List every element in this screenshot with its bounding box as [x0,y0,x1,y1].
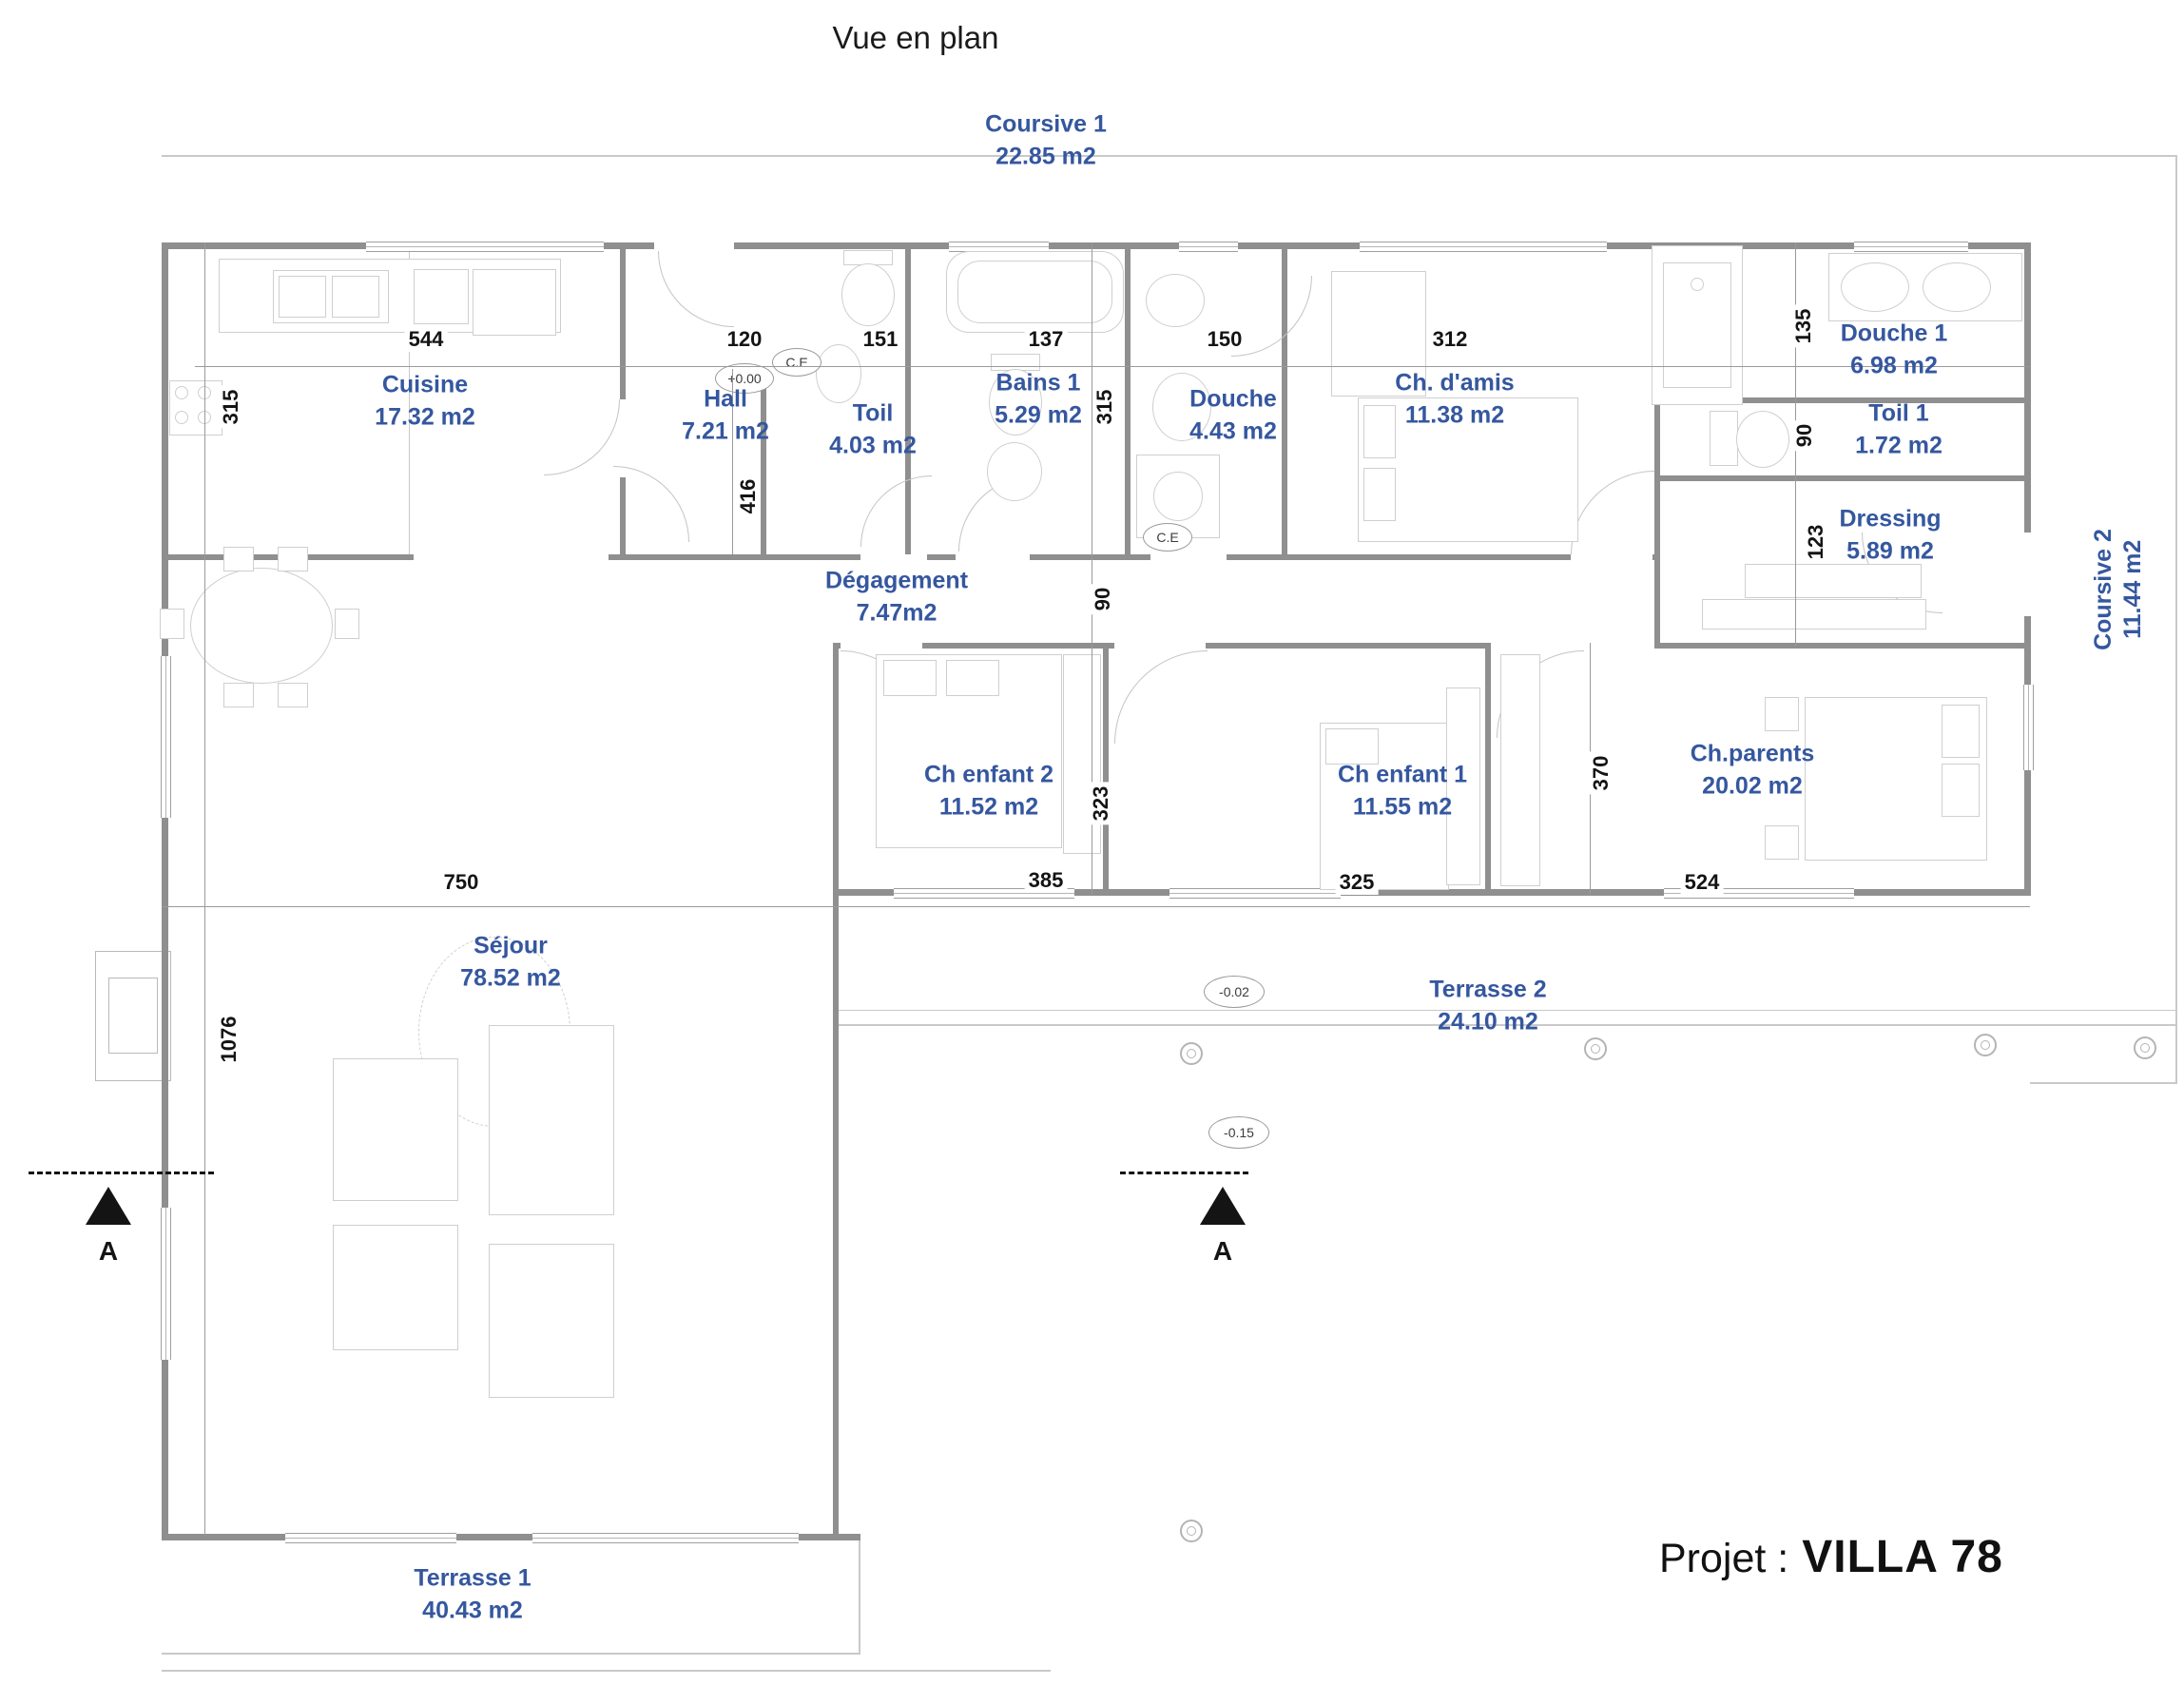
room-label-coursive2: Coursive 211.44 m2 [2089,529,2149,650]
entry-porch-steps [108,978,158,1054]
chair-icon [223,547,254,571]
pillow-icon [1942,705,1980,758]
room-label-toil: Toil4.03 m2 [829,397,917,462]
room-label-terrasse2: Terrasse 224.10 m2 [1429,974,1546,1038]
ground-edge-line [162,1670,1051,1672]
wardrobe-icon [1500,654,1540,886]
wall [1654,475,2030,481]
dimension-label: 416 [736,475,761,518]
section-arrow-icon [1200,1187,1246,1225]
window [366,242,604,252]
dimension-line [195,366,2030,367]
dimension-label: 385 [1025,868,1068,893]
project-name: VILLA 78 [1802,1531,2003,1583]
chair-icon [223,683,254,707]
nightstand-icon [1765,825,1799,860]
door-swing-arc [544,399,620,475]
coffee-table-icon [333,1225,458,1350]
dimension-label: 323 [1089,783,1113,825]
coursive2-slab-edge [2175,155,2177,1084]
pillow-icon [946,660,999,696]
washbasin-icon [1146,274,1205,327]
dimension-label: 137 [1025,327,1068,352]
dimension-label: 150 [1204,327,1247,352]
room-label-terrasse1: Terrasse 140.43 m2 [414,1562,531,1627]
post-icon [2134,1036,2156,1059]
coursive2-slab-bottom [2030,1082,2177,1084]
window [161,1208,171,1360]
washing-machine-drum-icon [1153,472,1203,521]
door-opening [956,554,1030,560]
terrace1-front-edge [162,1653,860,1655]
sofa-icon [489,1025,614,1215]
dimension-label: 120 [724,327,766,352]
floor-plan-sheet: Vue en plan [0,0,2184,1685]
room-label-bains1: Bains 15.29 m2 [995,367,1082,432]
door-swing-arc [613,466,689,542]
section-arrow-icon [86,1187,131,1225]
door-swing-arc [1114,650,1208,744]
sofa-icon [489,1244,614,1398]
section-cut-line [29,1172,214,1174]
room-label-cuisine: Cuisine17.32 m2 [375,369,475,434]
dimension-label: 135 [1791,305,1816,348]
wall [833,647,839,1540]
sink-bowl-icon [279,276,326,318]
window [1360,242,1607,252]
door-opening [1571,554,1652,560]
dimension-label: 90 [1792,420,1817,451]
window [161,656,171,818]
washbasin-icon [1923,262,1991,312]
dining-table-icon [190,568,333,684]
door-opening [860,554,927,560]
dimension-label: 312 [1429,327,1472,352]
window [2023,685,2034,770]
section-cut-line [1120,1172,1248,1174]
door-opening [1114,643,1206,649]
room-label-chparents: Ch.parents20.02 m2 [1691,738,1815,803]
sofa-icon [333,1058,458,1201]
dimension-label: 151 [860,327,902,352]
chair-icon [278,683,308,707]
water-heater-marker: C.E [1143,523,1192,552]
room-label-dressing: Dressing5.89 m2 [1840,503,1942,568]
burner-icon [175,411,188,424]
entry-door-opening [654,241,734,251]
dressing-shelf-icon [1745,564,1922,598]
fridge-icon [473,269,556,336]
post-icon [1180,1520,1203,1542]
post-icon [1180,1042,1203,1065]
room-label-douche: Douche4.43 m2 [1189,383,1277,448]
window [1169,888,1341,899]
room-label-degagement: Dégagement7.47m2 [825,565,968,629]
level-marker: -0.02 [1204,976,1265,1008]
nightstand-icon [1765,697,1799,731]
level-marker: -0.15 [1208,1116,1269,1149]
room-label-toil1: Toil 11.72 m2 [1855,397,1942,462]
shower-drain-icon [1691,278,1704,291]
pillow-icon [1363,468,1396,521]
wall [1654,643,2030,649]
room-label-sejour: Séjour78.52 m2 [460,930,561,995]
water-heater-marker: C.E [772,348,821,377]
dimension-line [204,242,205,1536]
window [1854,242,1968,252]
door-swing-arc [860,475,932,547]
dimension-label: 370 [1589,752,1614,795]
coursive1-slab-edge [162,155,2175,157]
dimension-label: 315 [1092,386,1117,429]
dimension-label: 123 [1804,521,1828,564]
room-label-hall: Hall7.21 m2 [682,383,769,448]
sink-bowl-icon [332,276,379,318]
section-letter: A [99,1236,118,1267]
room-label-chenfant2: Ch enfant 211.52 m2 [924,759,1053,823]
dimension-label: 544 [405,327,448,352]
dimension-label: 524 [1681,870,1724,895]
pillow-icon [1942,764,1980,817]
room-label-douche1: Douche 16.98 m2 [1841,318,1948,382]
toilet-icon [841,263,895,326]
window [1179,242,1238,252]
washbasin-icon [1841,262,1909,312]
door-swing-arc [1571,471,1654,554]
pillow-icon [883,660,937,696]
room-label-chamis: Ch. d'amis11.38 m2 [1395,367,1514,432]
chair-icon [160,609,184,639]
dimension-label: 325 [1336,870,1379,895]
dishwasher-icon [414,269,469,324]
pillow-icon [1363,405,1396,458]
dimension-line [162,906,2030,907]
chair-icon [278,547,308,571]
sliding-bay-window [532,1533,799,1543]
bathtub-inner-icon [957,261,1112,323]
door-opening [1150,554,1227,560]
dimension-label: 90 [1091,584,1115,614]
door-opening [2024,533,2031,616]
toilet-icon [1736,411,1789,468]
wall [1103,647,1109,895]
wall [1125,242,1131,560]
door-opening [841,643,922,649]
toilet-tank-icon [1710,411,1738,466]
door-opening [1495,643,1580,649]
dimension-label: 315 [219,386,243,429]
dimension-label: 750 [440,870,483,895]
washbasin-icon [816,344,861,403]
chair-icon [335,609,359,639]
burner-icon [175,386,188,399]
room-label-coursive1: Coursive 122.85 m2 [985,108,1107,173]
dimension-label: 1076 [217,1013,242,1067]
window [285,1533,456,1543]
wall [1485,643,1491,896]
post-icon [1584,1037,1607,1060]
washbasin-icon [987,442,1042,501]
project-label: Projet : [1659,1536,1788,1582]
section-letter: A [1213,1236,1232,1267]
room-label-chenfant1: Ch enfant 111.55 m2 [1338,759,1467,823]
project-title: Projet : VILLA 78 [1659,1531,2003,1583]
dressing-shelf-icon [1702,599,1926,629]
post-icon [1974,1034,1997,1056]
sheet-title: Vue en plan [833,20,999,56]
terrace1-side-edge [859,1540,860,1655]
door-swing-arc [658,251,734,327]
